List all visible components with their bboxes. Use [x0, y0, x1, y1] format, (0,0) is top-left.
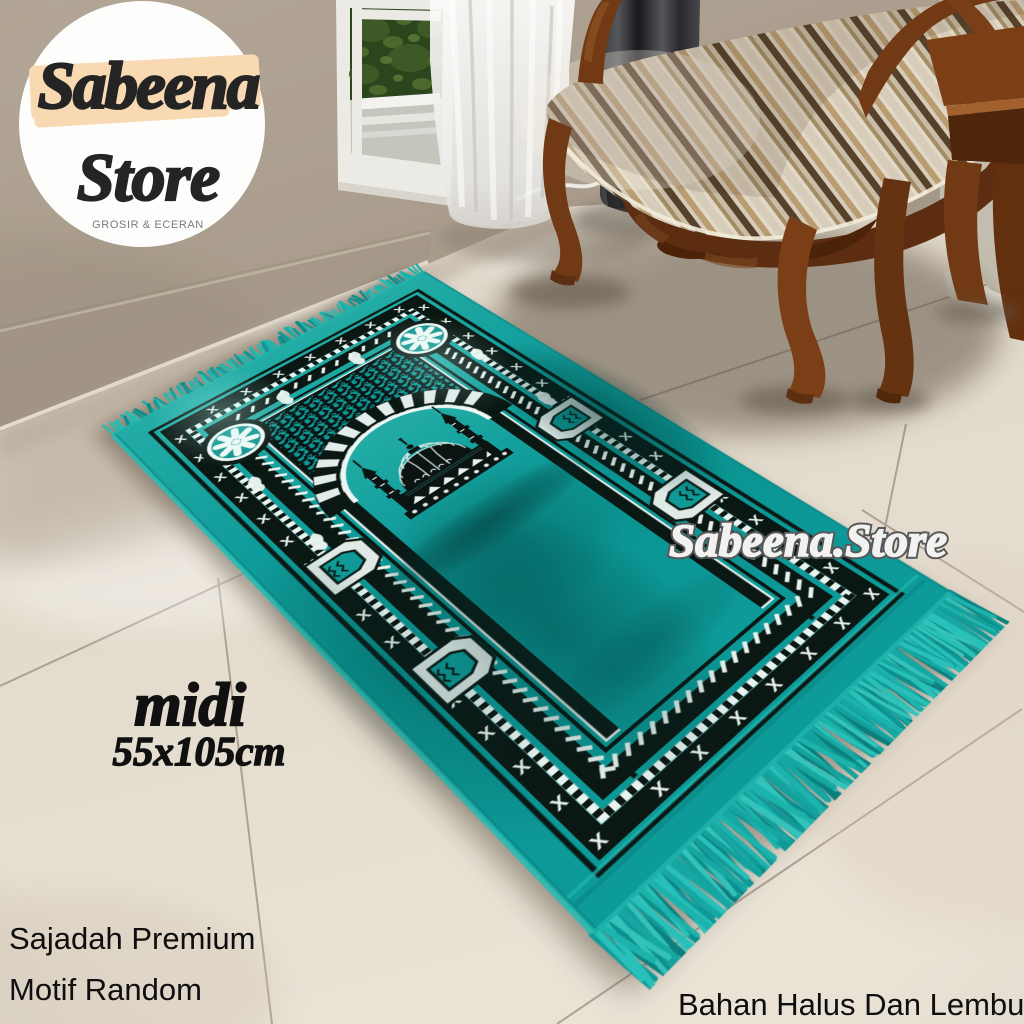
svg-text:Sabeena.Store: Sabeena.Store: [669, 515, 947, 567]
